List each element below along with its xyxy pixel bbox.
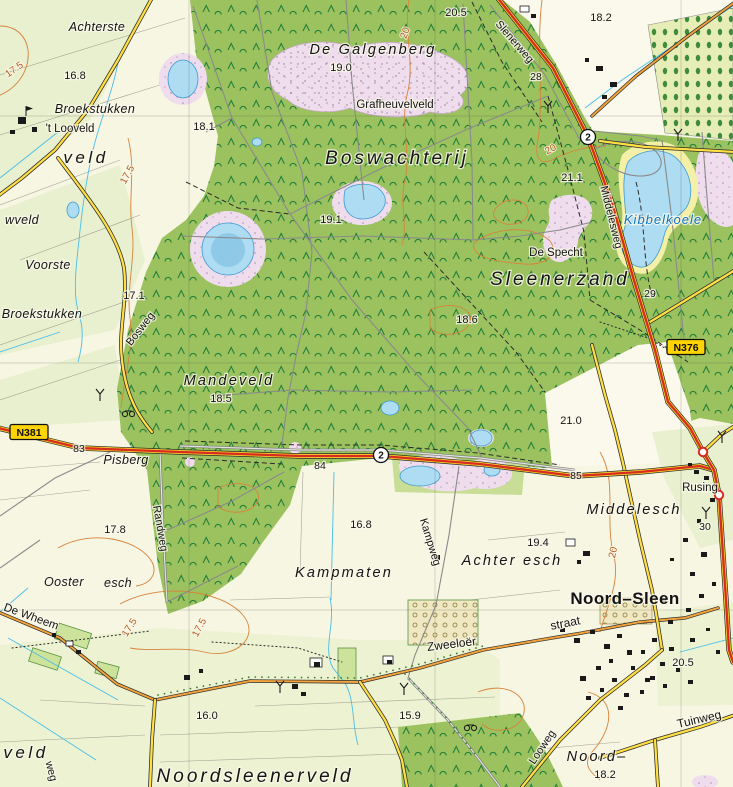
label-pisberg: Pisberg xyxy=(103,453,148,467)
map-label-spot: 17.8 xyxy=(104,524,125,536)
pond xyxy=(344,184,385,219)
label-rusing: Rusing xyxy=(682,482,718,494)
map-label-km: 29 xyxy=(644,288,656,300)
route-shield-n376: N376 xyxy=(667,340,705,355)
pond xyxy=(400,466,440,486)
route-number-2-central: 2 xyxy=(374,448,389,463)
map-label-spot: 18.5 xyxy=(210,393,231,405)
map-label-spot: 18.2 xyxy=(594,769,615,781)
label-voorste: Voorste xyxy=(25,258,70,272)
pond xyxy=(252,138,262,146)
map-label-spot: 15.9 xyxy=(399,710,420,722)
map-label-spot: 19.1 xyxy=(320,214,341,226)
map-label-spot: 16.8 xyxy=(64,70,85,82)
pond xyxy=(381,401,399,415)
map-label-spot: 18.6 xyxy=(456,314,477,326)
label-kampmaten: Kampmaten xyxy=(295,565,393,581)
svg-text:2: 2 xyxy=(585,133,591,144)
label-mandeveld: Mandeveld xyxy=(184,373,275,389)
map-label-km: 30 xyxy=(699,521,711,533)
roundabout xyxy=(699,448,707,456)
map-label-km: 84 xyxy=(314,460,326,472)
map-label-spot: 20.5 xyxy=(445,7,466,19)
map-label-spot: 21.0 xyxy=(560,415,581,427)
map-label-spot: 20.5 xyxy=(672,657,693,669)
label-veld-w: veld xyxy=(63,148,108,167)
label-boswachterij: Boswachterij xyxy=(325,148,469,169)
svg-text:2: 2 xyxy=(378,451,384,462)
label-middelesch: Middelesch xyxy=(586,502,681,518)
map-label-spot: 19.4 xyxy=(527,537,548,549)
label-sleenerzand: Sleenerzand xyxy=(490,269,630,290)
map-label-spot: 16.0 xyxy=(196,710,217,722)
label-broekstukken-n: Broekstukken xyxy=(55,102,136,116)
label-de-galgenberg: De Galgenberg xyxy=(310,42,437,58)
label-achter-esch: Achter esch xyxy=(461,553,563,569)
map-label-km: 83 xyxy=(73,443,85,455)
map-label-spot: 17.1 xyxy=(123,290,144,302)
label-de-specht: De Specht xyxy=(529,247,584,259)
map-label-spot: 19.0 xyxy=(330,62,351,74)
route-number-2-north: 2 xyxy=(581,130,596,145)
pond xyxy=(67,202,79,218)
map-label-spot: 18.1 xyxy=(193,121,214,133)
svg-text:N376: N376 xyxy=(673,342,698,354)
pond xyxy=(470,430,492,446)
label-achterste: Achterste xyxy=(68,20,125,34)
label-broekstukken-s: Broekstukken xyxy=(2,307,83,321)
label-noord-sleen: Noord–Sleen xyxy=(570,589,679,608)
map-label-km: 28 xyxy=(530,71,542,83)
label-grafheuvelveld: Grafheuvelveld xyxy=(356,99,433,111)
topographic-map[interactable]: N381N37622 Achterste16.8Broekstukken't L… xyxy=(0,0,733,787)
label-kibbelkoele: Kibbelkoele xyxy=(624,212,702,227)
map-label-spot: 18.2 xyxy=(590,12,611,24)
svg-text:N381: N381 xyxy=(16,427,41,439)
route-shield-n381: N381 xyxy=(10,425,48,440)
map-label-km: 85 xyxy=(570,470,582,482)
label-veld-sw: veld xyxy=(3,743,48,762)
map-label-spot: 21.1 xyxy=(561,172,582,184)
label-t-looveld: 't Looveld xyxy=(46,123,95,135)
label-noord: Noord– xyxy=(567,749,628,765)
pond xyxy=(168,60,198,98)
label-esch: esch xyxy=(104,576,132,590)
label-wveld: wveld xyxy=(5,213,40,227)
label-ooster: Ooster xyxy=(44,575,84,589)
label-noordsleenerveld: Noordsleenerveld xyxy=(157,766,354,787)
map-label-spot: 16.8 xyxy=(350,519,371,531)
